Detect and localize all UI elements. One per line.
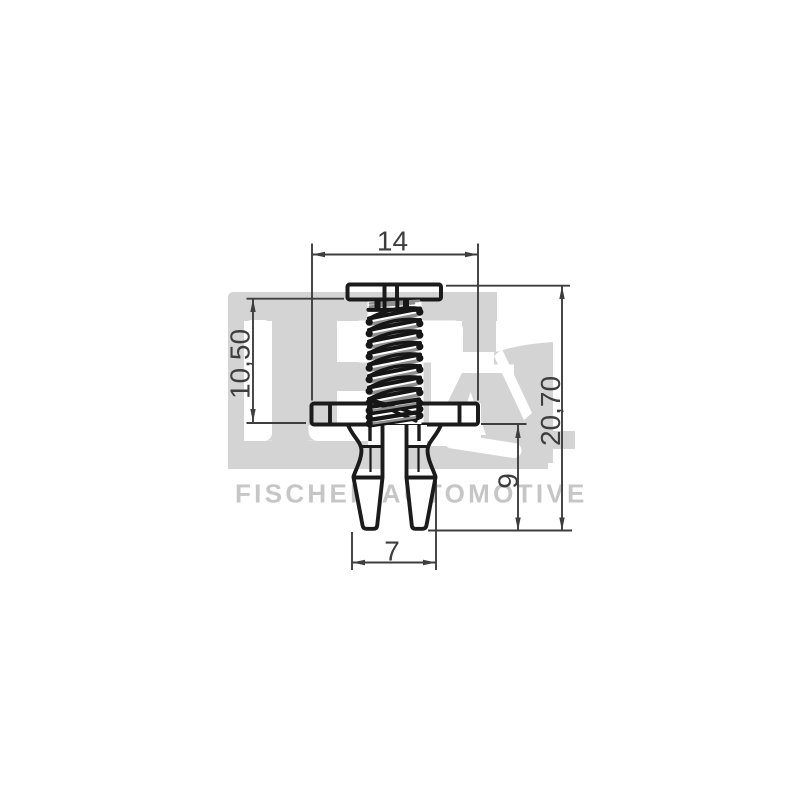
svg-text:14: 14	[377, 226, 408, 257]
svg-text:10,50: 10,50	[225, 329, 256, 399]
svg-text:9: 9	[493, 473, 524, 489]
svg-text:7: 7	[384, 536, 400, 567]
svg-text:20,70: 20,70	[535, 376, 566, 446]
